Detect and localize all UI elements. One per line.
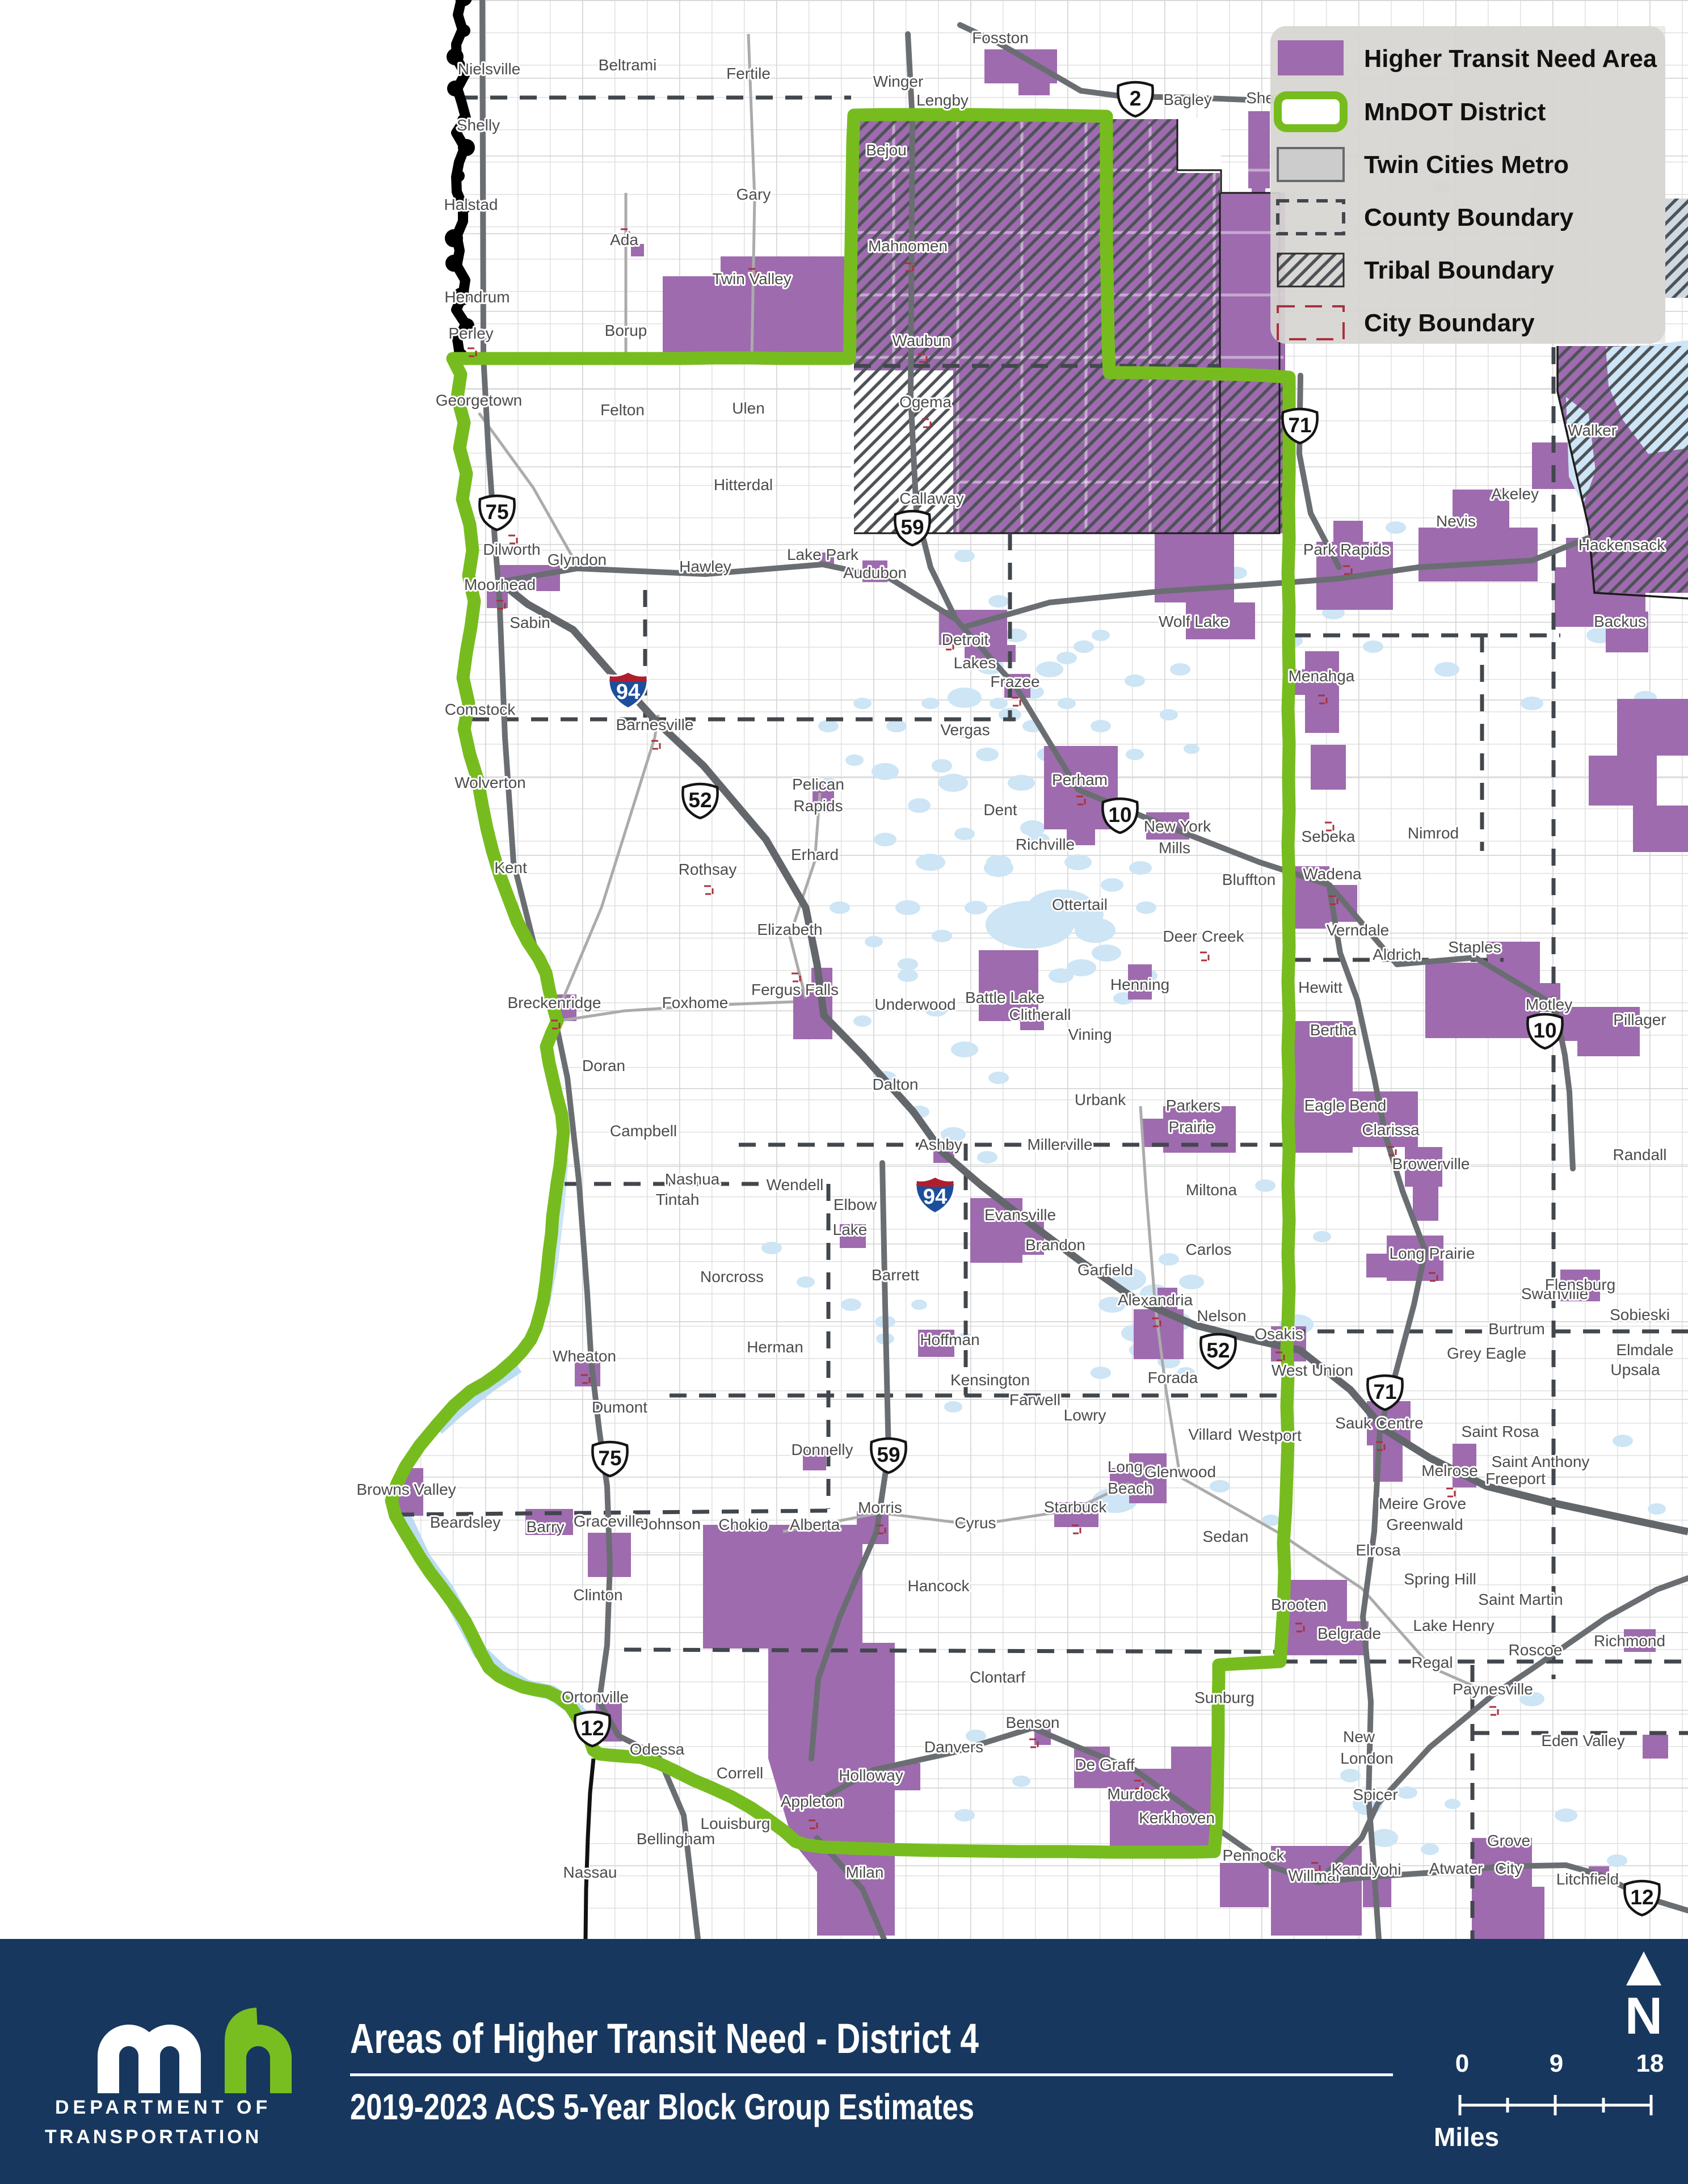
svg-text:Ulen: Ulen — [732, 399, 765, 417]
svg-text:Benson: Benson — [1006, 1714, 1060, 1731]
svg-text:Dilworth: Dilworth — [483, 541, 540, 558]
svg-text:Meire Grove: Meire Grove — [1379, 1495, 1466, 1512]
svg-text:Urbank: Urbank — [1075, 1091, 1126, 1108]
svg-text:Wolverton: Wolverton — [454, 774, 526, 791]
svg-text:Flensburg: Flensburg — [1545, 1276, 1616, 1293]
svg-text:Menahga: Menahga — [1289, 667, 1355, 685]
svg-text:Nimrod: Nimrod — [1408, 824, 1459, 842]
svg-text:75: 75 — [485, 500, 508, 524]
svg-text:City Boundary: City Boundary — [1364, 309, 1535, 337]
svg-text:Lakes: Lakes — [954, 654, 996, 672]
svg-text:Graceville: Graceville — [574, 1512, 644, 1530]
svg-text:Clinton: Clinton — [573, 1586, 622, 1604]
svg-text:Glyndon: Glyndon — [548, 551, 607, 568]
svg-text:Lake Henry: Lake Henry — [1413, 1617, 1494, 1634]
svg-text:Clarissa: Clarissa — [1362, 1121, 1420, 1139]
svg-text:Brandon: Brandon — [1025, 1236, 1085, 1254]
svg-text:12: 12 — [1630, 1886, 1653, 1909]
svg-text:Carlos: Carlos — [1186, 1241, 1232, 1258]
svg-text:Clontarf: Clontarf — [970, 1668, 1025, 1686]
svg-text:Ottertail: Ottertail — [1052, 896, 1108, 913]
svg-text:18: 18 — [1636, 2050, 1664, 2077]
svg-text:Forada: Forada — [1148, 1369, 1198, 1386]
svg-text:Areas of Higher Transit Need -: Areas of Higher Transit Need - District … — [350, 2015, 979, 2062]
svg-text:Upsala: Upsala — [1610, 1361, 1660, 1378]
svg-text:75: 75 — [598, 1447, 621, 1470]
svg-text:Twin Cities Metro: Twin Cities Metro — [1364, 151, 1569, 179]
svg-text:9: 9 — [1550, 2050, 1563, 2077]
svg-text:52: 52 — [1206, 1339, 1230, 1362]
svg-text:Spring Hill: Spring Hill — [1404, 1570, 1476, 1588]
svg-text:Sunburg: Sunburg — [1194, 1689, 1255, 1706]
svg-text:Akeley: Akeley — [1491, 485, 1539, 503]
svg-text:Long: Long — [1108, 1458, 1143, 1475]
svg-text:De Graff: De Graff — [1075, 1756, 1135, 1773]
svg-text:Evansville: Evansville — [984, 1206, 1056, 1224]
svg-text:New York: New York — [1144, 817, 1211, 835]
svg-text:Mills: Mills — [1159, 839, 1190, 857]
svg-text:Elizabeth: Elizabeth — [757, 921, 822, 938]
svg-text:2019-2023 ACS 5-Year Block Gro: 2019-2023 ACS 5-Year Block Group Estimat… — [350, 2086, 974, 2127]
svg-text:MnDOT District: MnDOT District — [1364, 98, 1546, 126]
svg-text:Clitherall: Clitherall — [1009, 1006, 1071, 1023]
svg-text:Tintah: Tintah — [656, 1191, 700, 1208]
svg-text:Morris: Morris — [858, 1499, 902, 1516]
svg-text:Burtrum: Burtrum — [1488, 1320, 1545, 1338]
svg-text:Herman: Herman — [747, 1338, 803, 1356]
svg-text:Aldrich: Aldrich — [1373, 946, 1421, 963]
svg-text:Murdock: Murdock — [1107, 1785, 1168, 1803]
svg-text:71: 71 — [1373, 1380, 1396, 1403]
svg-text:Dumont: Dumont — [592, 1398, 647, 1416]
svg-text:Verndale: Verndale — [1327, 921, 1390, 939]
svg-text:Elrosa: Elrosa — [1356, 1541, 1401, 1559]
svg-text:Johnson: Johnson — [641, 1515, 701, 1533]
svg-text:Saint Martin: Saint Martin — [1478, 1591, 1563, 1608]
svg-text:Alberta: Alberta — [790, 1516, 840, 1533]
svg-text:Nashua: Nashua — [665, 1170, 720, 1188]
svg-text:Alexandria: Alexandria — [1118, 1291, 1193, 1309]
svg-text:Beltrami: Beltrami — [599, 56, 657, 74]
svg-text:Lake: Lake — [833, 1221, 868, 1238]
svg-text:Foxhome: Foxhome — [662, 994, 729, 1011]
svg-text:Hitterdal: Hitterdal — [714, 476, 773, 494]
svg-text:Nielsville: Nielsville — [458, 60, 520, 78]
svg-text:Elmdale: Elmdale — [1616, 1341, 1673, 1359]
svg-text:Sedan: Sedan — [1203, 1528, 1249, 1545]
svg-text:Pelican: Pelican — [792, 775, 844, 793]
svg-text:Hoffman: Hoffman — [920, 1331, 979, 1348]
svg-text:Hendrum: Hendrum — [444, 288, 510, 306]
svg-text:Nelson: Nelson — [1197, 1307, 1246, 1325]
svg-text:Vining: Vining — [1068, 1026, 1112, 1043]
svg-text:Campbell: Campbell — [610, 1122, 677, 1140]
svg-text:Regal: Regal — [1411, 1654, 1453, 1671]
svg-text:Saint Anthony: Saint Anthony — [1492, 1453, 1590, 1470]
svg-text:Richville: Richville — [1016, 836, 1075, 853]
svg-text:Gary: Gary — [736, 185, 771, 203]
svg-text:Halstad: Halstad — [444, 196, 498, 213]
svg-text:Beardsley: Beardsley — [430, 1513, 501, 1531]
svg-text:Audubon: Audubon — [843, 564, 907, 581]
svg-text:Kandiyohi: Kandiyohi — [1332, 1861, 1401, 1878]
svg-text:Moorhead: Moorhead — [464, 576, 536, 593]
svg-text:Callaway: Callaway — [899, 490, 964, 507]
svg-text:Appleton: Appleton — [781, 1793, 844, 1810]
svg-text:Lake Park: Lake Park — [787, 546, 859, 563]
svg-text:Erhard: Erhard — [791, 846, 839, 863]
svg-text:Eagle Bend: Eagle Bend — [1304, 1097, 1387, 1114]
svg-text:Hackensack: Hackensack — [1578, 536, 1666, 554]
svg-text:Dent: Dent — [983, 801, 1017, 819]
svg-text:Litchfield: Litchfield — [1556, 1870, 1619, 1888]
svg-text:Grey Eagle: Grey Eagle — [1447, 1344, 1526, 1362]
svg-text:2: 2 — [1130, 87, 1142, 110]
svg-text:Henning: Henning — [1110, 976, 1169, 993]
svg-text:Bagley: Bagley — [1163, 91, 1212, 108]
svg-text:Bejou: Bejou — [866, 141, 907, 159]
svg-text:TRANSPORTATION: TRANSPORTATION — [45, 2126, 262, 2148]
svg-text:Millerville: Millerville — [1027, 1136, 1092, 1153]
svg-text:0: 0 — [1455, 2050, 1469, 2077]
svg-text:Motley: Motley — [1526, 996, 1572, 1013]
svg-text:10: 10 — [1108, 803, 1131, 827]
svg-text:Ada: Ada — [610, 231, 638, 248]
svg-text:Hewitt: Hewitt — [1298, 979, 1342, 996]
svg-text:Breckenridge: Breckenridge — [508, 994, 601, 1011]
svg-text:Sebeka: Sebeka — [1302, 828, 1356, 845]
svg-text:Kent: Kent — [494, 859, 527, 876]
svg-text:Kensington: Kensington — [950, 1371, 1030, 1389]
svg-text:Greenwald: Greenwald — [1386, 1516, 1463, 1533]
svg-text:Ogema: Ogema — [899, 393, 952, 411]
svg-text:Shelly: Shelly — [457, 116, 500, 134]
svg-text:Waubun: Waubun — [892, 332, 950, 349]
svg-text:New: New — [1343, 1728, 1375, 1745]
svg-text:Nevis: Nevis — [1436, 512, 1476, 530]
svg-text:Barrett: Barrett — [872, 1266, 919, 1284]
svg-text:Deer Creek: Deer Creek — [1163, 927, 1244, 945]
svg-text:Roscoe: Roscoe — [1509, 1641, 1563, 1659]
svg-text:Belgrade: Belgrade — [1317, 1625, 1381, 1642]
svg-text:Bellingham: Bellingham — [637, 1830, 715, 1848]
svg-text:County Boundary: County Boundary — [1364, 204, 1574, 231]
svg-text:Farwell: Farwell — [1009, 1391, 1060, 1409]
svg-text:Park Rapids: Park Rapids — [1303, 541, 1390, 558]
svg-text:Hancock: Hancock — [908, 1577, 970, 1595]
svg-text:Vergas: Vergas — [940, 721, 990, 739]
svg-text:94: 94 — [923, 1185, 947, 1209]
svg-text:Ashby: Ashby — [918, 1136, 962, 1153]
svg-text:Browerville: Browerville — [1392, 1155, 1470, 1173]
svg-text:Doran: Doran — [582, 1057, 625, 1074]
svg-text:Melrose: Melrose — [1421, 1462, 1478, 1479]
svg-text:Villard: Villard — [1188, 1426, 1232, 1443]
svg-text:Westport: Westport — [1238, 1427, 1302, 1444]
svg-text:Correll: Correll — [717, 1764, 763, 1782]
svg-text:City: City — [1495, 1860, 1522, 1877]
svg-text:Spicer: Spicer — [1353, 1786, 1397, 1803]
svg-text:10: 10 — [1533, 1019, 1556, 1042]
svg-text:Felton: Felton — [600, 401, 645, 419]
svg-text:Fosston: Fosston — [972, 29, 1029, 47]
svg-text:Frazee: Frazee — [990, 673, 1039, 690]
svg-text:Brooten: Brooten — [1271, 1596, 1327, 1613]
svg-text:Atwater: Atwater — [1429, 1860, 1483, 1877]
svg-text:Bertha: Bertha — [1310, 1021, 1357, 1039]
svg-text:Garfield: Garfield — [1077, 1261, 1133, 1279]
svg-text:Fergus Falls: Fergus Falls — [751, 981, 839, 998]
svg-text:Wolf Lake: Wolf Lake — [1159, 613, 1229, 630]
svg-text:Underwood: Underwood — [874, 996, 955, 1013]
svg-text:Comstock: Comstock — [445, 701, 516, 718]
svg-text:Paynesville: Paynesville — [1453, 1680, 1533, 1698]
svg-text:Miltona: Miltona — [1186, 1181, 1237, 1199]
svg-text:Saint Rosa: Saint Rosa — [1462, 1423, 1539, 1440]
svg-text:Wheaton: Wheaton — [553, 1347, 616, 1365]
svg-text:12: 12 — [580, 1717, 604, 1740]
svg-text:Tribal Boundary: Tribal Boundary — [1364, 256, 1554, 284]
svg-text:Sauk Centre: Sauk Centre — [1335, 1414, 1424, 1432]
svg-text:Bluffton: Bluffton — [1222, 871, 1276, 888]
svg-text:Perham: Perham — [1052, 771, 1108, 789]
svg-text:Ortonville: Ortonville — [562, 1688, 629, 1706]
svg-text:Osakis: Osakis — [1255, 1325, 1303, 1343]
svg-text:Glenwood: Glenwood — [1144, 1463, 1216, 1481]
svg-text:Sabin: Sabin — [510, 614, 550, 631]
svg-text:N: N — [1625, 1987, 1662, 2045]
svg-text:Lengby: Lengby — [916, 91, 969, 109]
svg-text:Dalton: Dalton — [873, 1076, 919, 1093]
svg-text:Georgetown: Georgetown — [436, 391, 523, 409]
svg-text:Grove: Grove — [1487, 1832, 1530, 1849]
svg-text:Kerkhoven: Kerkhoven — [1139, 1809, 1215, 1827]
svg-text:Long Prairie: Long Prairie — [1390, 1245, 1475, 1262]
svg-text:Wendell: Wendell — [767, 1176, 824, 1194]
svg-text:Miles: Miles — [1434, 2122, 1499, 2152]
svg-text:Nassau: Nassau — [563, 1863, 617, 1881]
svg-text:Staples: Staples — [1448, 938, 1501, 956]
svg-text:Walker: Walker — [1568, 421, 1617, 439]
svg-text:Donnelly: Donnelly — [792, 1441, 853, 1458]
svg-text:Fertile: Fertile — [726, 65, 771, 82]
svg-text:Prairie: Prairie — [1169, 1118, 1215, 1136]
svg-text:Pennock: Pennock — [1223, 1846, 1285, 1864]
svg-text:Norcross: Norcross — [700, 1268, 764, 1285]
svg-text:59: 59 — [900, 516, 924, 539]
svg-text:Backus: Backus — [1594, 613, 1646, 630]
svg-text:Twin Valley: Twin Valley — [712, 270, 792, 288]
svg-text:Higher Transit Need Area: Higher Transit Need Area — [1364, 45, 1657, 73]
svg-text:DEPARTMENT OF: DEPARTMENT OF — [55, 2097, 271, 2118]
svg-text:Wadena: Wadena — [1303, 865, 1362, 883]
svg-text:London: London — [1340, 1749, 1393, 1767]
svg-text:Beach: Beach — [1108, 1479, 1152, 1497]
svg-text:Borup: Borup — [605, 322, 647, 339]
svg-text:Winger: Winger — [873, 73, 924, 90]
svg-text:Battle Lake: Battle Lake — [965, 989, 1045, 1006]
svg-text:94: 94 — [616, 680, 640, 704]
svg-text:Detroit: Detroit — [942, 631, 989, 648]
svg-text:Freeport: Freeport — [1485, 1470, 1546, 1487]
svg-text:Holloway: Holloway — [839, 1766, 903, 1784]
svg-text:Barnesville: Barnesville — [616, 716, 694, 733]
svg-text:Pillager: Pillager — [1613, 1011, 1666, 1028]
svg-text:Perley: Perley — [448, 324, 493, 342]
svg-text:Odessa: Odessa — [630, 1740, 685, 1758]
svg-text:Richmond: Richmond — [1594, 1632, 1665, 1650]
svg-text:Danvers: Danvers — [924, 1738, 983, 1756]
svg-text:Rapids: Rapids — [793, 797, 843, 815]
svg-text:Cyrus: Cyrus — [954, 1514, 996, 1532]
svg-text:Elbow: Elbow — [834, 1196, 877, 1213]
svg-text:Starbuck: Starbuck — [1044, 1498, 1107, 1516]
svg-text:Chokio: Chokio — [718, 1516, 768, 1533]
svg-text:Mahnomen: Mahnomen — [868, 237, 948, 255]
svg-text:West Union: West Union — [1272, 1361, 1353, 1379]
svg-text:Lowry: Lowry — [1064, 1406, 1106, 1424]
svg-text:Randall: Randall — [1613, 1146, 1667, 1163]
svg-text:Barry: Barry — [527, 1518, 565, 1536]
svg-text:Eden Valley: Eden Valley — [1541, 1732, 1624, 1749]
svg-text:Sobieski: Sobieski — [1610, 1306, 1670, 1323]
svg-text:52: 52 — [688, 789, 712, 812]
svg-text:Hawley: Hawley — [679, 558, 731, 575]
svg-text:Browns Valley: Browns Valley — [356, 1481, 456, 1498]
svg-text:Rothsay: Rothsay — [679, 861, 737, 878]
svg-text:Milan: Milan — [846, 1863, 884, 1881]
svg-text:59: 59 — [877, 1443, 900, 1466]
svg-text:Parkers: Parkers — [1166, 1097, 1220, 1114]
svg-text:71: 71 — [1288, 414, 1311, 437]
